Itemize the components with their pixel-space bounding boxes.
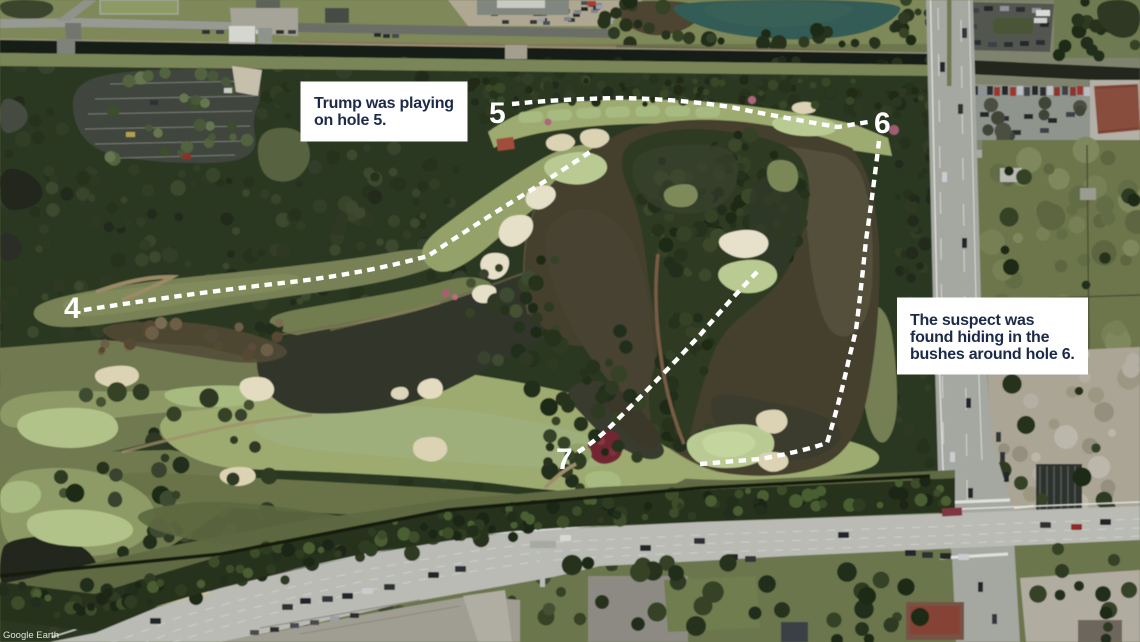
svg-text:4: 4 <box>64 292 81 325</box>
svg-text:5: 5 <box>489 97 506 130</box>
svg-text:7: 7 <box>556 443 573 476</box>
svg-text:The suspect was: The suspect was <box>910 312 1035 329</box>
svg-text:on hole 5.: on hole 5. <box>314 112 386 129</box>
svg-text:6: 6 <box>874 107 891 140</box>
svg-text:bushes around hole 6.: bushes around hole 6. <box>910 346 1075 363</box>
svg-text:Google Earth: Google Earth <box>3 630 59 641</box>
svg-text:found hiding in the: found hiding in the <box>910 329 1050 346</box>
svg-text:Trump was playing: Trump was playing <box>314 95 454 112</box>
